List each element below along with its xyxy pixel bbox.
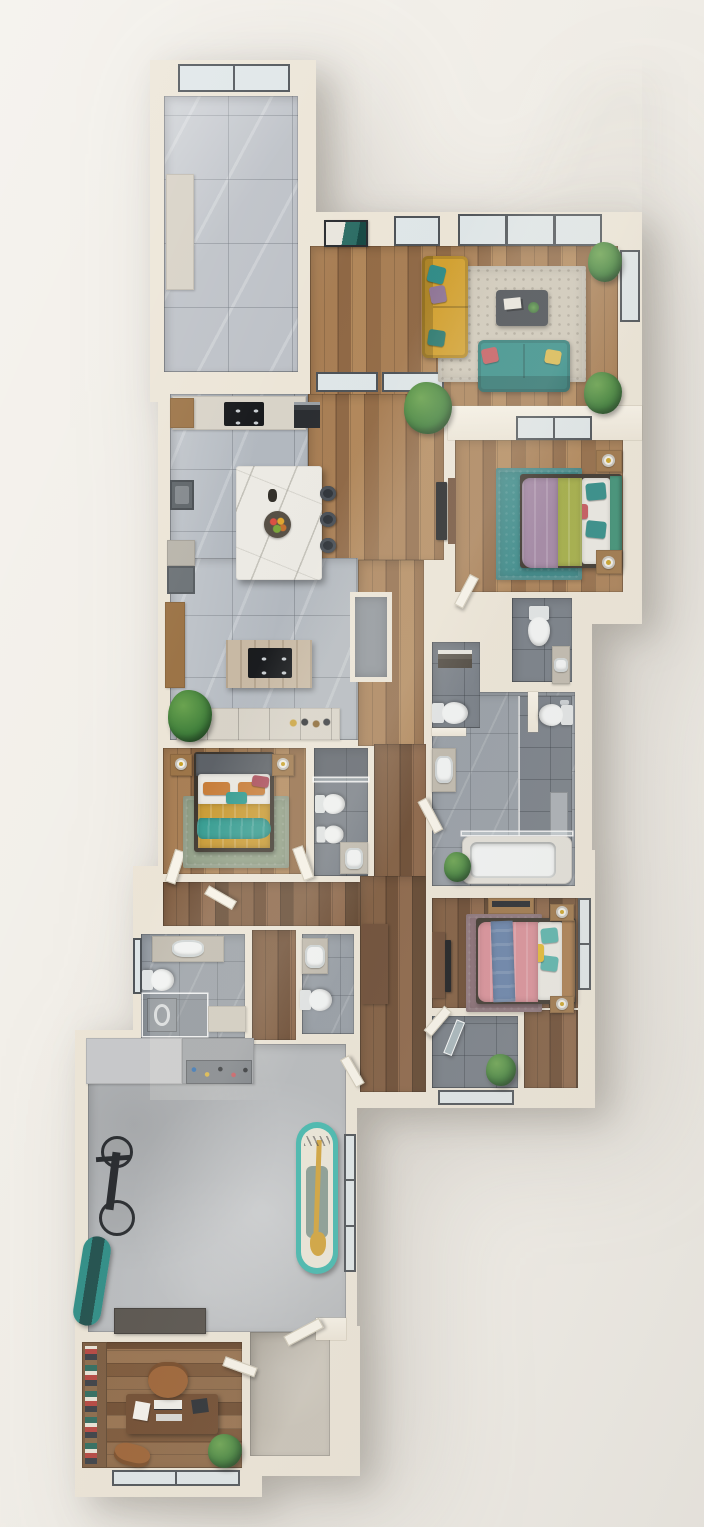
laundry-counter: [208, 1006, 246, 1032]
kitchen-cabinet-gray: [167, 540, 195, 566]
floor-hall-bed2: [163, 882, 360, 926]
floor-hall-closet: [252, 930, 296, 1040]
building: [0, 0, 704, 1527]
bedroom2-pillow-teal: [226, 792, 247, 804]
plant-master-bath: [444, 852, 471, 882]
tool-pegboard: [186, 1060, 252, 1084]
sofa-teal-back: [478, 376, 570, 392]
ensuite-shower: [314, 748, 368, 778]
bedroom3-throw-blue: [491, 921, 516, 1003]
garage-door-mullion-2: [344, 1225, 356, 1227]
sink-basin: [175, 486, 189, 504]
coffee-table-books: [503, 297, 521, 310]
cooktop: [224, 402, 264, 426]
living-window-main: [458, 214, 602, 246]
desk-keyboard: [156, 1414, 182, 1421]
floor-hall-south-a: [374, 744, 426, 880]
office-chair: [148, 1362, 188, 1398]
master-lamp-n: [602, 454, 615, 467]
pillow-purple: [429, 285, 448, 305]
desk-papers: [133, 1401, 151, 1421]
wall-oven: [294, 402, 320, 428]
living-wall-art: [324, 220, 368, 247]
floor-bedroom3-south: [524, 1010, 578, 1088]
wc-sink: [554, 658, 568, 672]
pillow-green-foot: [427, 329, 446, 347]
living-window-mullion-1: [505, 214, 508, 246]
master-pillow-teal-1: [585, 482, 606, 501]
wall-stub-wc-nook: [528, 692, 538, 732]
master-lamp-s: [602, 556, 615, 569]
bedroom2-headboard: [196, 754, 272, 776]
wc-toilet: [528, 606, 550, 646]
bathtub-basin: [470, 842, 556, 878]
bedroom3-lamp-n: [556, 906, 568, 918]
bar-stool-3: [320, 538, 336, 553]
desk-laptop: [191, 1398, 209, 1414]
floor-entry-hall: [250, 1332, 330, 1456]
ensuite-bidet: [317, 826, 344, 844]
bedroom2-lamp-e: [277, 758, 289, 770]
fruit-bowl: [264, 511, 291, 538]
living-window-left: [394, 216, 440, 246]
hall-bath-toilet: [300, 989, 332, 1011]
laundry-sink: [172, 940, 204, 957]
laundry-window: [133, 938, 142, 994]
bar-stool-2: [320, 512, 336, 527]
paddleboard: [296, 1122, 338, 1274]
desk-monitor: [154, 1400, 182, 1409]
bedroom3-lamp-s: [556, 998, 568, 1010]
plant-hall-large: [404, 382, 452, 434]
bedroom3-window-mullion: [578, 943, 591, 945]
hall-wardrobe: [362, 924, 388, 1004]
paddleboard-bungee: [304, 1136, 330, 1146]
office-desk: [126, 1394, 218, 1434]
bedroom3-tv: [445, 940, 451, 992]
bookshelf-books: [85, 1346, 97, 1464]
foyer-cabinet: [166, 174, 194, 290]
guest-wc-shelf: [438, 650, 472, 668]
pantry-nook: [350, 592, 392, 682]
bicycle-rear-wheel: [99, 1200, 135, 1236]
plant-kitchen: [168, 690, 212, 742]
sofa-seam: [523, 344, 525, 378]
living-window-mullion-2: [553, 214, 556, 246]
ensuite-shower-glass: [314, 778, 368, 781]
workbench: [114, 1308, 206, 1334]
wall-stub-guest-wc: [432, 728, 466, 736]
sliding-door-left: [316, 372, 378, 392]
bedroom3-pillow-teal-1: [540, 927, 558, 944]
laundry-toilet: [142, 969, 174, 991]
master-blanket-olive: [556, 478, 582, 566]
master-bath-sink: [435, 756, 453, 783]
sofa-seam: [433, 306, 468, 308]
ensuite-sink: [345, 848, 363, 869]
hall-tv: [436, 482, 447, 540]
bedroom2-throw-teal: [197, 818, 271, 839]
bedroom3-headboard: [562, 920, 575, 1002]
plant-living-ne: [588, 242, 622, 282]
kitchen-sink-unit: [170, 480, 194, 510]
bar-stool-1: [320, 486, 336, 501]
living-window-right: [620, 250, 640, 322]
garage-glazed-door: [344, 1134, 356, 1272]
garage-cabinets-light: [86, 1038, 182, 1084]
hall-tv-console: [448, 478, 456, 544]
master-pillow-teal-2: [585, 520, 607, 539]
counter-bottles: [288, 714, 332, 732]
bedroom2-lamp-w: [175, 758, 187, 770]
garage-door-mullion-1: [344, 1179, 356, 1181]
plant-office: [208, 1434, 242, 1468]
plant-living-se: [584, 372, 622, 414]
coffee-table: [496, 290, 548, 326]
kitchen-fridge-cabinet: [170, 398, 194, 428]
guest-wc-toilet: [432, 702, 468, 724]
plant-shower-bath: [486, 1054, 516, 1086]
pillow-yellow: [544, 349, 562, 366]
bathtub-glass: [462, 832, 572, 835]
floor-plan-render: [0, 0, 704, 1527]
master-window-mullion: [553, 416, 555, 440]
office-bookshelf: [82, 1342, 107, 1468]
paddle-blade: [310, 1232, 326, 1256]
south-wing-window: [438, 1090, 514, 1105]
grill-cooktop: [248, 648, 292, 678]
island-decor: [268, 489, 277, 502]
kitchen-dishwasher: [167, 566, 195, 594]
coffee-table-plant: [528, 302, 539, 313]
foyer-window-mullion: [233, 64, 235, 92]
washer: [147, 998, 177, 1032]
office-window-mullion: [175, 1470, 177, 1486]
kitchen-bar-shelf: [165, 602, 185, 688]
ensuite-toilet: [315, 794, 345, 814]
bedroom3-tv-unit: [432, 932, 445, 998]
bedroom2-pillow-maroon: [251, 775, 269, 788]
master-bath-toilet-nook: [539, 704, 573, 726]
bedroom3-dresser-runner: [492, 901, 530, 907]
master-blanket-purple: [522, 478, 558, 568]
hall-bath-sink: [305, 945, 325, 968]
